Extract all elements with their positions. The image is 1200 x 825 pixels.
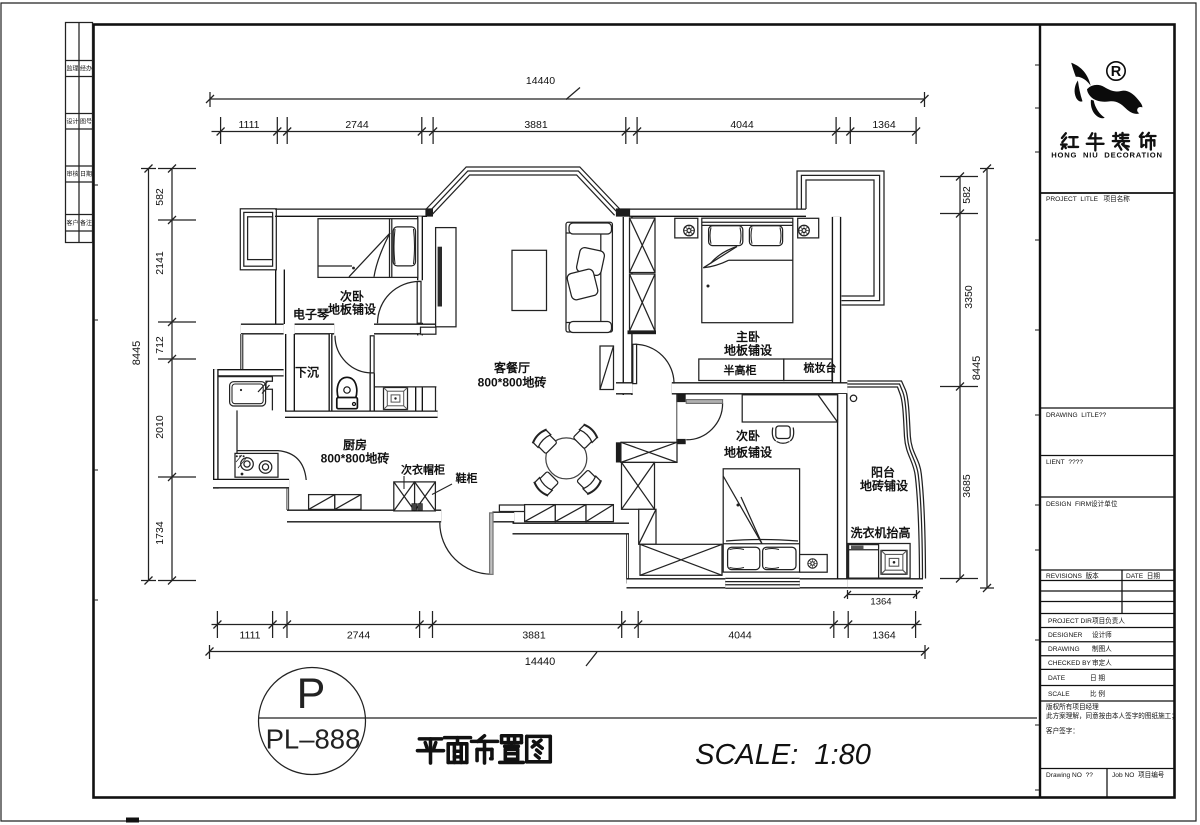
svg-text:Drawing NO ??: Drawing NO ?? xyxy=(1046,772,1093,779)
svg-text:PL–888: PL–888 xyxy=(266,724,361,755)
svg-text:1734: 1734 xyxy=(154,521,166,545)
svg-text:梳妆台: 梳妆台 xyxy=(803,361,837,375)
svg-text:PROJECT DIR: PROJECT DIR xyxy=(1048,618,1092,625)
svg-text:厨房: 厨房 xyxy=(343,437,367,452)
svg-text:1111: 1111 xyxy=(239,630,260,642)
svg-text:2744: 2744 xyxy=(345,119,369,131)
svg-text:DESIGN FIRM设计单位: DESIGN FIRM设计单位 xyxy=(1046,499,1118,508)
svg-text:R: R xyxy=(1111,64,1122,80)
svg-text:3350: 3350 xyxy=(963,285,975,309)
svg-text:P: P xyxy=(297,670,326,718)
svg-text:14440: 14440 xyxy=(525,656,556,668)
svg-text:1364: 1364 xyxy=(870,597,891,608)
svg-text:582: 582 xyxy=(961,186,973,204)
svg-text:3881: 3881 xyxy=(524,119,548,131)
svg-text:下沉: 下沉 xyxy=(295,365,319,380)
svg-text:582: 582 xyxy=(154,188,166,206)
svg-text:800*800地砖: 800*800地砖 xyxy=(321,451,390,466)
svg-text:DRAWING: DRAWING xyxy=(1048,646,1080,653)
svg-text:LIENT ????: LIENT ???? xyxy=(1046,459,1083,466)
svg-text:电子琴: 电子琴 xyxy=(293,307,330,322)
svg-text:8445: 8445 xyxy=(971,356,983,380)
svg-text:客餐厅: 客餐厅 xyxy=(493,360,530,375)
svg-text:CHECKED BY: CHECKED BY xyxy=(1048,660,1091,667)
svg-text:地板铺设: 地板铺设 xyxy=(724,445,773,460)
svg-text:洗衣机抬高: 洗衣机抬高 xyxy=(850,525,910,540)
svg-text:2010: 2010 xyxy=(154,415,166,439)
svg-text:1364: 1364 xyxy=(872,119,896,131)
svg-text:1111: 1111 xyxy=(238,119,259,131)
svg-text:审定人: 审定人 xyxy=(1092,658,1112,667)
svg-text:2141: 2141 xyxy=(154,251,166,275)
svg-text:SCALE: 1:80: SCALE: 1:80 xyxy=(695,739,871,771)
svg-text:阳台: 阳台 xyxy=(871,465,895,480)
svg-text:Job NO 项目编号: Job NO 项目编号 xyxy=(1112,770,1165,779)
svg-text:8445: 8445 xyxy=(131,341,143,365)
svg-text:地板铺设: 地板铺设 xyxy=(328,302,377,317)
svg-text:PROJECT LITLE 项目名称: PROJECT LITLE 项目名称 xyxy=(1046,194,1130,203)
svg-text:设计: 设计 xyxy=(66,118,78,126)
svg-text:地板铺设: 地板铺设 xyxy=(724,343,773,358)
svg-text:项目负责人: 项目负责人 xyxy=(1092,616,1125,625)
svg-text:712: 712 xyxy=(154,336,166,354)
svg-text:日 期: 日 期 xyxy=(1090,674,1105,682)
svg-text:3881: 3881 xyxy=(522,630,546,642)
svg-text:经办: 经办 xyxy=(80,65,92,73)
svg-text:4044: 4044 xyxy=(728,630,752,642)
svg-text:SCALE: SCALE xyxy=(1048,691,1070,698)
svg-text:备注: 备注 xyxy=(80,219,92,227)
svg-text:审核: 审核 xyxy=(66,170,78,178)
svg-text:版权所有项目经理: 版权所有项目经理 xyxy=(1046,702,1099,711)
svg-text:14440: 14440 xyxy=(526,75,555,87)
svg-text:800*800地砖: 800*800地砖 xyxy=(478,375,547,390)
svg-text:DATE: DATE xyxy=(1048,675,1066,682)
svg-text:监理: 监理 xyxy=(66,65,78,73)
svg-text:此方案理解，同意按由本人签字的图纸施工；: 此方案理解，同意按由本人签字的图纸施工； xyxy=(1046,711,1178,720)
svg-text:3685: 3685 xyxy=(961,474,973,498)
svg-text:DRAWING LITLE??: DRAWING LITLE?? xyxy=(1046,412,1107,419)
svg-text:次衣帽柜: 次衣帽柜 xyxy=(401,463,445,477)
svg-text:DATE 日期: DATE 日期 xyxy=(1126,572,1160,580)
svg-text:比 例: 比 例 xyxy=(1090,689,1105,698)
svg-text:客户签字：: 客户签字： xyxy=(1046,726,1079,735)
svg-text:客户: 客户 xyxy=(66,219,78,227)
svg-text:地砖铺设: 地砖铺设 xyxy=(860,478,909,493)
svg-text:日期: 日期 xyxy=(80,170,92,178)
svg-text:设计师: 设计师 xyxy=(1092,630,1112,639)
svg-text:REVISIONS 版本: REVISIONS 版本 xyxy=(1046,571,1099,580)
svg-text:鞋柜: 鞋柜 xyxy=(456,471,478,485)
svg-text:图号: 图号 xyxy=(80,119,92,126)
svg-text:次卧: 次卧 xyxy=(340,289,364,304)
svg-text:制图人: 制图人 xyxy=(1092,644,1112,653)
svg-text:1364: 1364 xyxy=(872,630,896,642)
svg-text:2744: 2744 xyxy=(347,630,371,642)
svg-text:主卧: 主卧 xyxy=(736,329,760,344)
svg-text:HONG NIU DECORATION: HONG NIU DECORATION xyxy=(1051,151,1163,160)
svg-text:半高柜: 半高柜 xyxy=(724,363,757,377)
svg-text:4044: 4044 xyxy=(730,119,754,131)
svg-text:DESIGNER: DESIGNER xyxy=(1048,632,1083,639)
svg-text:次卧: 次卧 xyxy=(736,428,760,443)
